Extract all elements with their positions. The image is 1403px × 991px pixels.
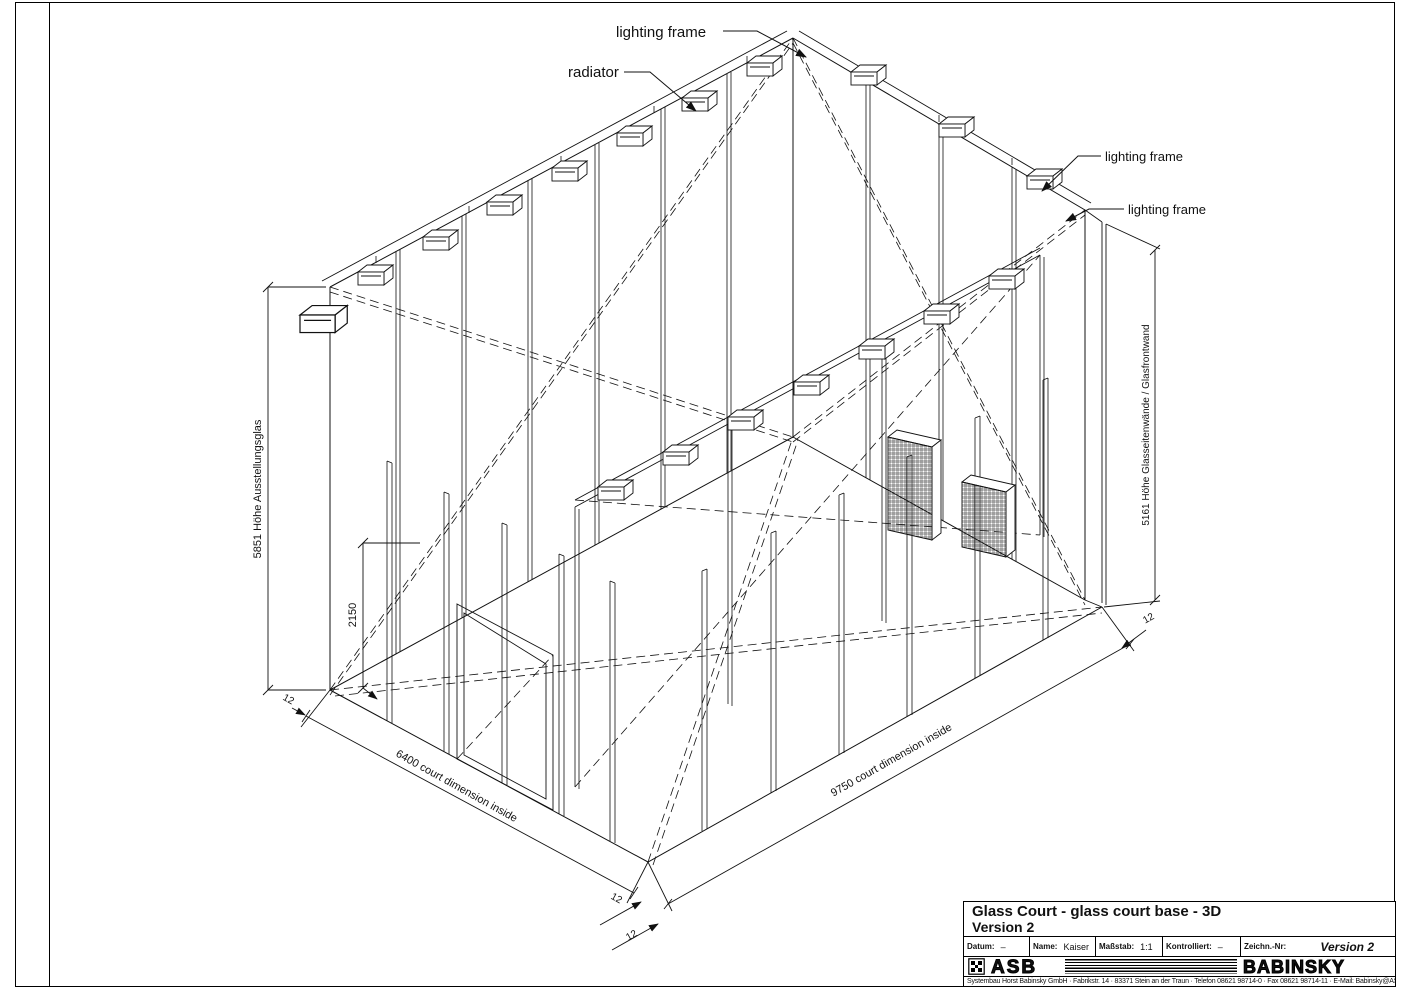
dim-text-height-right: 5161 Höhe Glasseitenwände / Glasfrontwan… xyxy=(1141,324,1152,525)
dim-height-inner xyxy=(358,538,420,699)
callout-lighting-frame-mid: lighting frame xyxy=(1105,149,1183,164)
floor-edges xyxy=(330,607,1102,862)
field-zeichnungsnummer-value: Version 2 xyxy=(1320,940,1374,954)
field-datum-label: Datum: xyxy=(967,942,995,951)
drawing-version: Version 2 xyxy=(972,920,1387,935)
field-massstab-value: 1:1 xyxy=(1140,942,1153,952)
field-massstab-label: Maßstab: xyxy=(1099,942,1134,951)
title-block-footer: Systembau Horst Babinsky GmbH · Fabrikst… xyxy=(964,976,1395,986)
dim-text-thickness-left: 12 xyxy=(281,692,296,707)
field-kontrolliert: Kontrolliert: – xyxy=(1163,937,1241,956)
field-zeichnungsnummer: Zeichn.-Nr: Version 2 xyxy=(1241,937,1395,956)
title-block-title: Glass Court - glass court base - 3D Vers… xyxy=(964,902,1395,937)
babinsky-wordmark-text: BABINSKY xyxy=(1243,957,1345,976)
dimension-lines xyxy=(263,224,1160,950)
radiator-boxes xyxy=(300,56,1062,500)
dim-text-height-left: 5851 Höhe Ausstellungsglas xyxy=(252,419,264,558)
field-zeichnungsnummer-label: Zeichn.-Nr: xyxy=(1244,942,1286,951)
dim-text-height-inner: 2150 xyxy=(347,603,359,627)
dashed-diagonals xyxy=(330,38,1102,865)
cad-isometric-drawing: 5851 Höhe Ausstellungsglas 2150 5161 Höh… xyxy=(0,0,1403,991)
callout-lighting-frame-low: lighting frame xyxy=(1128,202,1206,217)
field-datum-value: – xyxy=(1001,942,1006,952)
dim-text-width-left: 6400 court dimension inside xyxy=(394,748,520,825)
dim-height-left xyxy=(263,282,326,695)
babinsky-wordmark: BABINSKY xyxy=(1241,957,1391,976)
callout-lighting-frame-top: lighting frame xyxy=(616,24,706,41)
field-kontrolliert-label: Kontrolliert: xyxy=(1166,942,1212,951)
title-block-logos: ASB BABINSKY xyxy=(964,957,1395,976)
callout-radiator: radiator xyxy=(568,64,619,81)
dim-text-thickness-right: 12 xyxy=(1141,611,1156,626)
front-left-fins xyxy=(387,461,615,843)
field-name: Name: Kaiser xyxy=(1030,937,1096,956)
dim-text-width-right: 9750 court dimension inside xyxy=(829,721,954,799)
asb-wordmark: ASB xyxy=(989,957,1061,976)
court-structure xyxy=(322,31,1106,862)
dim-text-thickness-bottom-2: 12 xyxy=(624,928,639,943)
asb-logo-icon xyxy=(968,958,985,975)
drawing-title: Glass Court - glass court base - 3D xyxy=(972,904,1387,920)
logo-stripes xyxy=(1065,959,1237,974)
field-name-value: Kaiser xyxy=(1063,942,1089,952)
field-kontrolliert-value: – xyxy=(1218,942,1223,952)
field-name-label: Name: xyxy=(1033,942,1057,951)
field-datum: Datum: – xyxy=(964,937,1030,956)
dim-width-right xyxy=(600,607,1146,950)
glass-front-wall xyxy=(1085,210,1106,607)
title-block-fields: Datum: – Name: Kaiser Maßstab: 1:1 Kontr… xyxy=(964,937,1395,957)
callout-leaders xyxy=(624,31,1124,221)
dim-text-thickness-bottom-1: 12 xyxy=(609,891,624,906)
asb-wordmark-text: ASB xyxy=(991,957,1037,976)
drawing-sheet: 5851 Höhe Ausstellungsglas 2150 5161 Höh… xyxy=(0,0,1403,991)
field-massstab: Maßstab: 1:1 xyxy=(1096,937,1163,956)
title-block: Glass Court - glass court base - 3D Vers… xyxy=(963,901,1396,987)
